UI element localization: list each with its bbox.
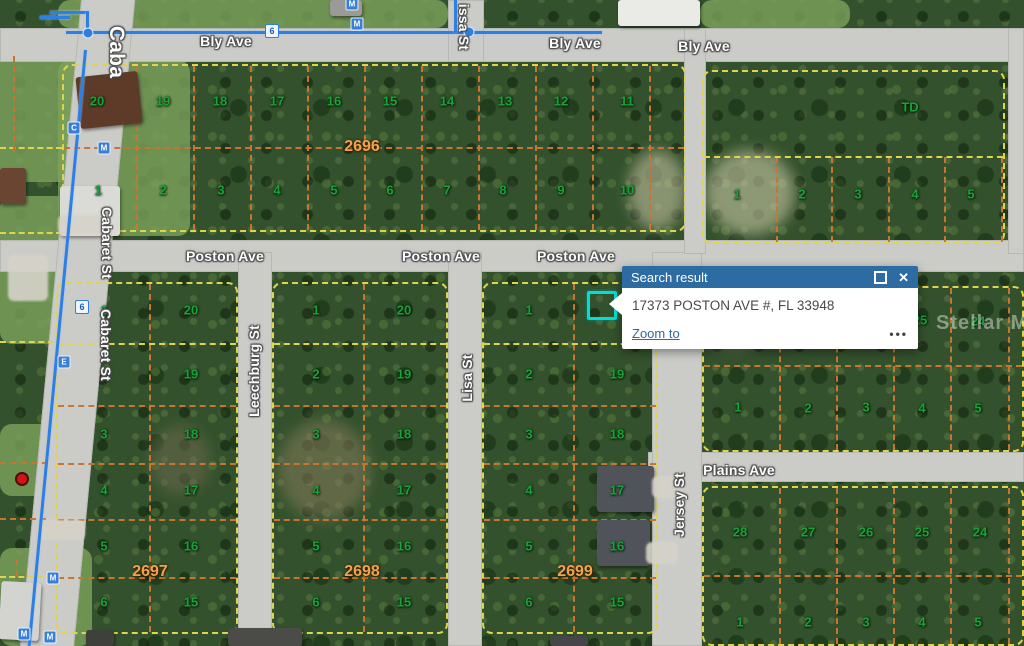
popup-footer: Zoom to ••• — [632, 326, 908, 341]
lot-number: 15 — [610, 595, 624, 610]
utility-marker-icon: M — [346, 0, 359, 11]
map-canvas[interactable]: 66MMCMEMMM201918171615141312111234567891… — [0, 0, 1024, 646]
parcel-lot-line — [0, 341, 54, 343]
driveway-patch — [40, 520, 85, 540]
lot-number: 6 — [312, 595, 319, 610]
lot-number: 5 — [100, 539, 107, 554]
parcel-block-outline — [272, 282, 448, 634]
parcel-lot-line — [704, 365, 1022, 367]
parcel-lot-line — [1008, 488, 1010, 644]
lot-number: 4 — [911, 187, 918, 202]
lot-number: 1 — [312, 303, 319, 318]
lot-number: 3 — [312, 427, 319, 442]
utility-junction-icon — [83, 28, 94, 39]
street-label: Poston Ave — [402, 248, 480, 264]
street-label: Jersey St — [671, 473, 687, 537]
lot-number: 16 — [184, 539, 198, 554]
mls-watermark: Stellar MLS — [936, 312, 1024, 335]
street-label: Plains Ave — [703, 462, 775, 478]
lot-number: 1 — [734, 400, 741, 415]
parcel-lot-line — [888, 157, 890, 242]
parcel-lot-line — [0, 232, 62, 234]
lot-number: 8 — [499, 183, 506, 198]
parcel-lot-line — [58, 519, 236, 521]
parcel-lot-line — [0, 576, 52, 578]
lot-number: 4 — [525, 483, 532, 498]
close-icon[interactable]: ✕ — [898, 271, 909, 284]
lot-number: 2 — [525, 367, 532, 382]
route-number-badge: 6 — [75, 300, 89, 314]
popup-body: 17373 POSTON AVE #, FL 33948 Zoom to ••• — [622, 288, 918, 349]
lot-number: 16 — [610, 539, 624, 554]
lot-number: 2 — [804, 615, 811, 630]
lot-number: 1 — [94, 183, 101, 198]
parcel-lot-line — [950, 488, 952, 644]
street-label: issa St — [456, 4, 472, 51]
lot-number: 5 — [974, 401, 981, 416]
house-roof — [228, 628, 302, 646]
lot-number: 16 — [327, 94, 341, 109]
utility-line — [50, 11, 88, 14]
parcel-lot-line — [1001, 157, 1003, 242]
parcel-lot-line — [0, 147, 62, 149]
road — [238, 252, 272, 646]
parcel-block-outline — [702, 70, 1005, 244]
parcel-lot-line — [274, 343, 446, 345]
street-label: Cabaret St — [98, 309, 114, 381]
lot-number: 19 — [156, 94, 170, 109]
lot-number: 2 — [312, 367, 319, 382]
utility-line — [66, 31, 602, 34]
house-roof — [86, 630, 114, 646]
street-label: Cabaret St — [99, 207, 115, 279]
street-label: Bly Ave — [549, 35, 601, 51]
red-utility-dot-icon — [15, 472, 29, 486]
lot-number: 4 — [918, 615, 925, 630]
lot-number: 17 — [184, 483, 198, 498]
lot-number: 17 — [397, 483, 411, 498]
parcel-lot-line — [58, 405, 236, 407]
driveway-patch — [8, 255, 48, 301]
street-label: Leechburg St — [246, 325, 262, 417]
lot-number: 3 — [854, 187, 861, 202]
lot-number: 1 — [733, 187, 740, 202]
parcel-lot-line — [274, 463, 446, 465]
popup-title: Search result — [631, 270, 874, 285]
street-label: Caba — [104, 26, 128, 78]
lot-number: 17 — [610, 483, 624, 498]
utility-marker-icon: M — [47, 572, 60, 585]
parcel-lot-line — [0, 462, 48, 464]
parcel-lot-line — [58, 343, 236, 345]
street-label: Bly Ave — [678, 38, 730, 54]
block-number: 2696 — [344, 138, 380, 156]
lot-number: 19 — [184, 367, 198, 382]
lot-number: 26 — [859, 525, 873, 540]
road — [1008, 28, 1024, 254]
block-number: 2697 — [132, 563, 168, 581]
parcel-lot-line — [704, 575, 1022, 577]
parcel-lot-line — [484, 463, 656, 465]
lot-number: 3 — [217, 183, 224, 198]
lot-number: 1 — [525, 303, 532, 318]
lawn-patch — [700, 0, 850, 28]
popup-address: 17373 POSTON AVE #, FL 33948 — [632, 298, 908, 313]
lot-number: 19 — [610, 367, 624, 382]
lot-number: 5 — [312, 539, 319, 554]
lot-number: 14 — [440, 94, 454, 109]
popup-header[interactable]: Search result ✕ — [622, 266, 918, 288]
lot-number: 28 — [733, 525, 747, 540]
street-label: Poston Ave — [186, 248, 264, 264]
lot-number: 18 — [610, 427, 624, 442]
parcel-block-outline — [56, 282, 238, 634]
lot-number: 6 — [386, 183, 393, 198]
parcel-lot-line — [58, 463, 236, 465]
parcel-lot-line — [484, 405, 656, 407]
zoom-to-link[interactable]: Zoom to — [632, 326, 680, 341]
lot-number: 18 — [397, 427, 411, 442]
lot-number: 4 — [100, 483, 107, 498]
parcel-lot-line — [13, 56, 15, 152]
lot-number: 2 — [804, 401, 811, 416]
road — [448, 252, 482, 646]
street-label: Lisa St — [459, 354, 475, 401]
lot-number: 13 — [498, 94, 512, 109]
street-label: Poston Ave — [537, 248, 615, 264]
lot-number: 5 — [974, 615, 981, 630]
lot-number: 3 — [862, 615, 869, 630]
lot-number: 10 — [620, 183, 634, 198]
lot-number: 3 — [525, 427, 532, 442]
lot-number: 2 — [159, 183, 166, 198]
lot-number: 7 — [443, 183, 450, 198]
lot-number: 17 — [270, 94, 284, 109]
lot-number: 24 — [973, 525, 987, 540]
parcel-lot-line — [944, 157, 946, 242]
lot-number: 2 — [798, 187, 805, 202]
lot-number: 5 — [525, 539, 532, 554]
house-roof — [550, 636, 588, 646]
parcel-lot-line — [274, 405, 446, 407]
lot-number: 9 — [557, 183, 564, 198]
lot-number: 1 — [736, 615, 743, 630]
parcel-lot-line — [779, 488, 781, 644]
route-number-badge: 6 — [265, 24, 279, 38]
lot-number: 16 — [397, 539, 411, 554]
parcel-lot-line — [274, 519, 446, 521]
street-label: Bly Ave — [200, 33, 252, 49]
lot-number: 6 — [525, 595, 532, 610]
lot-number: 4 — [312, 483, 319, 498]
block-number: 2699 — [557, 563, 593, 581]
maximize-icon[interactable] — [874, 271, 887, 284]
driveway-patch — [646, 542, 678, 564]
lot-number: 20 — [397, 303, 411, 318]
house-roof — [597, 466, 654, 512]
lot-number: 27 — [801, 525, 815, 540]
lot-number: 6 — [100, 595, 107, 610]
lot-number: 15 — [383, 94, 397, 109]
lot-number: 5 — [330, 183, 337, 198]
popup-callout-arrow — [609, 293, 622, 315]
house-roof — [618, 0, 700, 26]
lot-number: 15 — [184, 595, 198, 610]
lot-number: 18 — [213, 94, 227, 109]
search-result-popup: Search result ✕ 17373 POSTON AVE #, FL 3… — [622, 266, 918, 349]
lot-number: 25 — [915, 525, 929, 540]
more-options-button[interactable]: ••• — [889, 327, 908, 341]
parcel-lot-line — [704, 156, 1003, 158]
lot-number: 15 — [397, 595, 411, 610]
lot-number: 19 — [397, 367, 411, 382]
block-number: 2698 — [344, 563, 380, 581]
house-roof — [75, 71, 142, 129]
parcel-lot-line — [836, 488, 838, 644]
utility-marker-icon: M — [98, 142, 111, 155]
utility-marker-icon: M — [44, 631, 57, 644]
lot-number: 20 — [90, 94, 104, 109]
house-roof — [0, 168, 26, 204]
lot-number: 5 — [967, 187, 974, 202]
utility-marker-icon: M — [351, 18, 364, 31]
parcel-lot-line — [831, 157, 833, 242]
lot-number: 4 — [273, 183, 280, 198]
lot-number: 4 — [918, 401, 925, 416]
lot-number: 3 — [100, 427, 107, 442]
parcel-lot-line — [776, 157, 778, 242]
lot-number: 18 — [184, 427, 198, 442]
lot-number: 11 — [620, 94, 634, 109]
lot-number: TD — [901, 100, 918, 115]
lot-number: 20 — [184, 303, 198, 318]
utility-line — [40, 16, 70, 19]
parcel-lot-line — [893, 488, 895, 644]
utility-marker-icon: C — [68, 122, 81, 135]
lot-number: 3 — [862, 400, 869, 415]
utility-marker-icon: M — [18, 628, 31, 641]
lot-number: 12 — [554, 94, 568, 109]
utility-marker-icon: E — [58, 356, 71, 369]
